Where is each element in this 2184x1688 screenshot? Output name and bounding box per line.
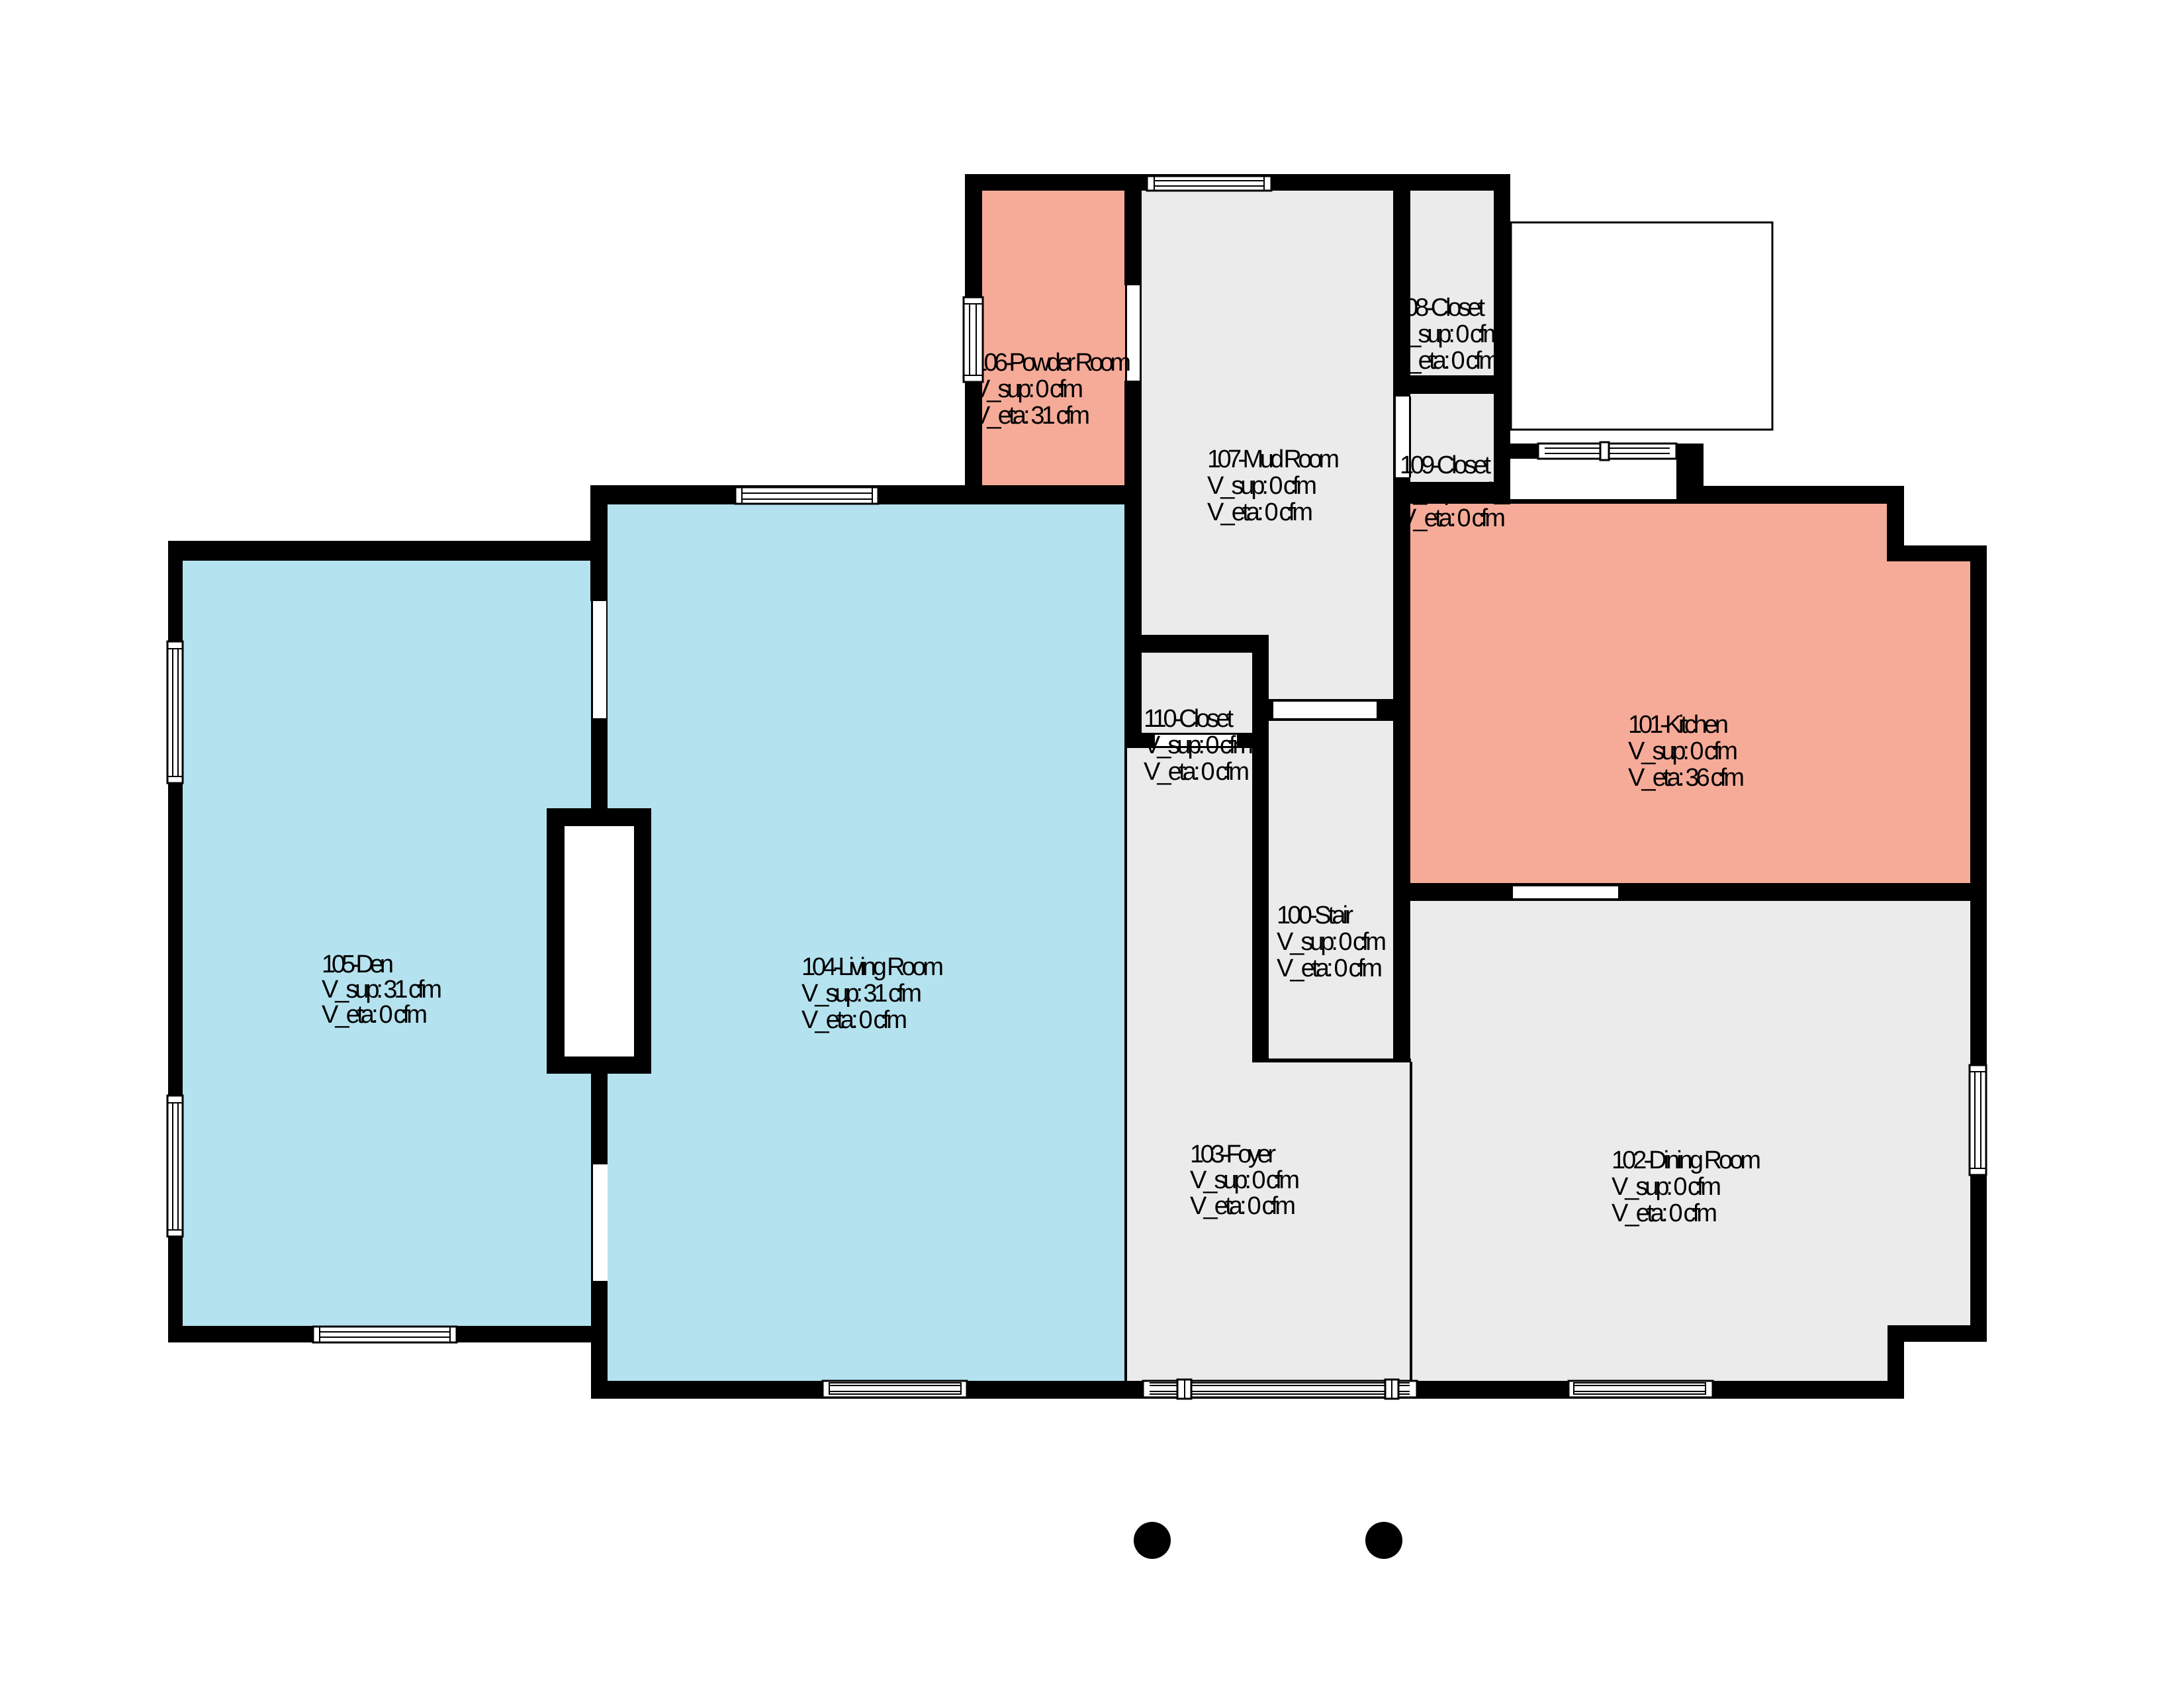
svg-text:V_sup: 0 cfm: V_sup: 0 cfm	[974, 375, 1083, 403]
svg-text:V_sup: 31 cfm: V_sup: 31 cfm	[801, 980, 922, 1008]
svg-text:V_eta: 0 cfm: V_eta: 0 cfm	[1612, 1199, 1717, 1227]
svg-text:104-Living Room: 104-Living Room	[801, 953, 944, 981]
svg-text:V_sup: 0 cfm: V_sup: 0 cfm	[1612, 1173, 1721, 1201]
svg-text:V_eta: 0 cfm: V_eta: 0 cfm	[1207, 498, 1313, 526]
svg-text:V_eta: 31 cfm: V_eta: 31 cfm	[974, 402, 1090, 430]
svg-text:V_eta: 0 cfm: V_eta: 0 cfm	[1400, 504, 1506, 532]
svg-text:V_eta: 0 cfm: V_eta: 0 cfm	[1277, 955, 1383, 982]
svg-text:V_sup: 0 cfm: V_sup: 0 cfm	[1190, 1166, 1300, 1194]
svg-text:106-Powder Room: 106-Powder Room	[974, 349, 1131, 377]
svg-text:V_eta: 36 cfm: V_eta: 36 cfm	[1628, 764, 1745, 792]
svg-text:107-Mud Room: 107-Mud Room	[1207, 445, 1340, 473]
svg-text:V_eta: 0 cfm: V_eta: 0 cfm	[801, 1006, 907, 1034]
svg-text:101-Kitchen: 101-Kitchen	[1628, 711, 1729, 739]
svg-text:100-Stair: 100-Stair	[1277, 902, 1353, 929]
svg-text:V_eta: 0 cfm: V_eta: 0 cfm	[322, 1001, 428, 1029]
svg-text:V_sup: 0 cfm: V_sup: 0 cfm	[1628, 737, 1738, 765]
svg-text:V_sup: 0 cfm: V_sup: 0 cfm	[1277, 928, 1387, 956]
svg-text:109-Closet: 109-Closet	[1400, 451, 1491, 479]
svg-text:110-Closet: 110-Closet	[1144, 705, 1234, 733]
svg-text:V_eta: 0 cfm: V_eta: 0 cfm	[1144, 758, 1250, 786]
svg-text:102-Dining Room: 102-Dining Room	[1612, 1147, 1761, 1174]
svg-text:105-Den: 105-Den	[322, 951, 394, 978]
svg-text:V_sup: 31 cfm: V_sup: 31 cfm	[322, 976, 442, 1004]
svg-text:103-Foyer: 103-Foyer	[1190, 1141, 1276, 1168]
svg-text:V_eta: 0 cfm: V_eta: 0 cfm	[1190, 1192, 1296, 1220]
svg-text:V_sup: 0 cfm: V_sup: 0 cfm	[1207, 472, 1317, 500]
